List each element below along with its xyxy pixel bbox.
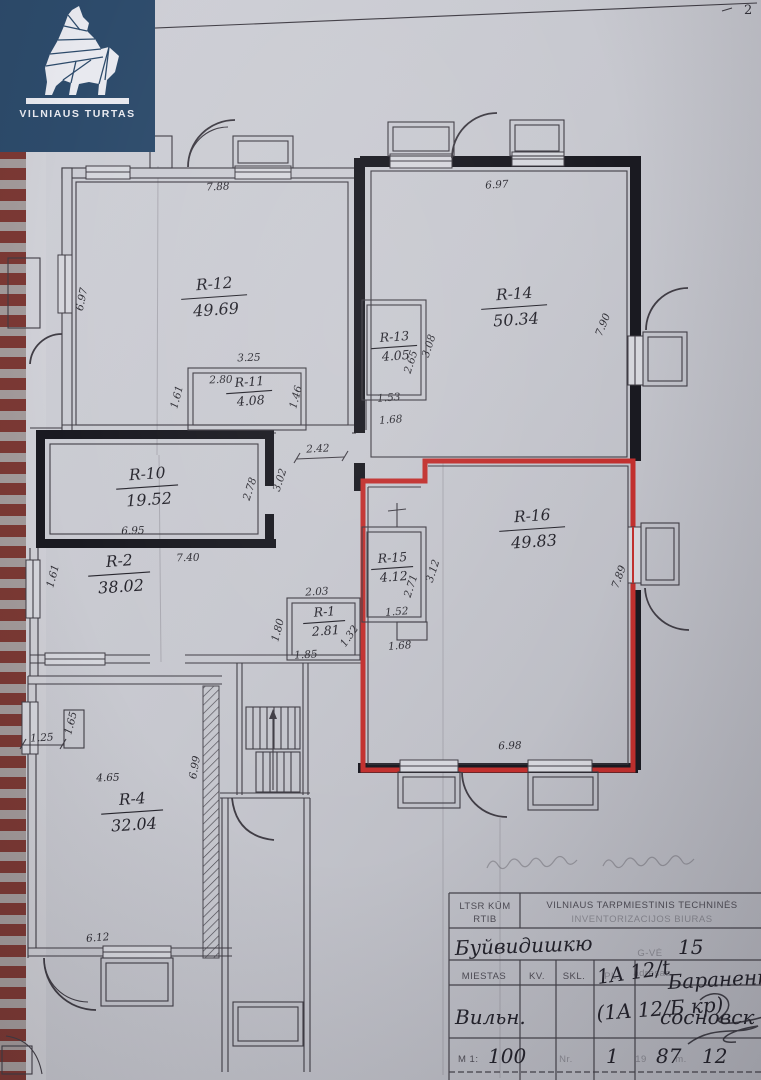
- street-name-handwritten: Буйвидишкю: [453, 931, 593, 960]
- dim-r10-opening: 2.42: [305, 442, 330, 455]
- year-prefix: 19: [635, 1054, 647, 1065]
- hatched-wall: [203, 686, 219, 958]
- scale-value-handwritten: 100: [488, 1044, 526, 1068]
- month-handwritten: 12: [702, 1044, 727, 1068]
- surname2-handwritten: сосновск: [660, 1005, 755, 1029]
- svg-text:R-16: R-16: [512, 506, 551, 527]
- year-suffix: m.: [675, 1054, 687, 1065]
- dim-r1-bottom: 1.85: [294, 648, 318, 661]
- dim-r4-width: 4.65: [95, 772, 120, 785]
- doc-no-label: Nr.: [559, 1054, 573, 1065]
- svg-text:R-11: R-11: [233, 373, 265, 390]
- svg-text:50.34: 50.34: [492, 308, 539, 330]
- svg-text:4.05: 4.05: [380, 347, 410, 364]
- bureau-line2: INVENTORIZACIJOS BIURAS: [571, 914, 712, 925]
- binder-edge-stripes: [0, 0, 26, 1080]
- col-skl: SKL.: [563, 971, 586, 982]
- svg-text:32.04: 32.04: [110, 813, 157, 835]
- dim-r13-w1: 1.53: [377, 391, 401, 405]
- dim-r14-top: 6.97: [485, 178, 509, 191]
- city-value-handwritten: Вильн.: [454, 1005, 526, 1029]
- dim-r15-w2: 1.68: [388, 639, 412, 653]
- page-number: 2: [744, 3, 752, 18]
- owner-name-handwritten: Бараненк: [666, 965, 761, 994]
- svg-text:R-1: R-1: [312, 603, 336, 620]
- svg-text:38.02: 38.02: [97, 575, 144, 597]
- svg-text:R-4: R-4: [117, 789, 146, 809]
- wolf-ground-bar: [26, 98, 129, 104]
- col-kv: KV.: [529, 971, 545, 982]
- col-city: MIESTAS: [462, 971, 507, 982]
- svg-text:4.08: 4.08: [235, 392, 265, 409]
- dim-r11-width: 2.80: [208, 374, 233, 387]
- dim-r12-top: 7.88: [206, 180, 230, 193]
- svg-text:49.69: 49.69: [192, 298, 240, 320]
- dim-r15-w1: 1.52: [385, 605, 409, 619]
- svg-text:R-12: R-12: [194, 274, 233, 295]
- dim-r4-left: 1.25: [30, 731, 54, 744]
- scale-label: M 1:: [458, 1054, 478, 1065]
- dim-r2-top: 7.40: [176, 552, 200, 565]
- svg-text:R-10: R-10: [127, 464, 166, 485]
- svg-text:49.83: 49.83: [510, 530, 558, 552]
- agency-line2: RTIB: [473, 914, 496, 925]
- vilniaus-turtas-logo: VILNIAUS TURTAS: [0, 0, 155, 152]
- svg-text:R-13: R-13: [378, 328, 410, 345]
- scanned-floor-plan-photo: 2: [0, 0, 761, 1080]
- dim-r11-top: 3.25: [237, 352, 261, 365]
- agency-line1: LTSR KŪM: [459, 901, 510, 912]
- svg-text:R-2: R-2: [104, 551, 133, 571]
- logo-brand-text: VILNIAUS TURTAS: [0, 108, 155, 120]
- dim-r10-bottom: 6.95: [121, 525, 145, 538]
- dim-r1-top: 2.03: [304, 585, 329, 598]
- svg-text:19.52: 19.52: [125, 488, 172, 510]
- svg-text:2.81: 2.81: [310, 622, 340, 639]
- dim-r16-bottom: 6.98: [498, 740, 522, 753]
- svg-text:R-14: R-14: [494, 284, 533, 305]
- logo-wolf-icon: [0, 0, 155, 152]
- doc-no-handwritten: 1: [606, 1044, 619, 1068]
- svg-text:4.12: 4.12: [378, 568, 408, 585]
- street-number-handwritten: 15: [678, 935, 703, 959]
- dim-r13-w2: 1.68: [379, 413, 403, 427]
- svg-text:R-15: R-15: [376, 549, 408, 566]
- bureau-line1: VILNIAUS TARPMIESTINIS TECHNINĖS: [546, 900, 737, 911]
- dim-r4-bottom: 6.12: [86, 931, 111, 945]
- floor-plan-drawing: 2: [0, 0, 761, 1080]
